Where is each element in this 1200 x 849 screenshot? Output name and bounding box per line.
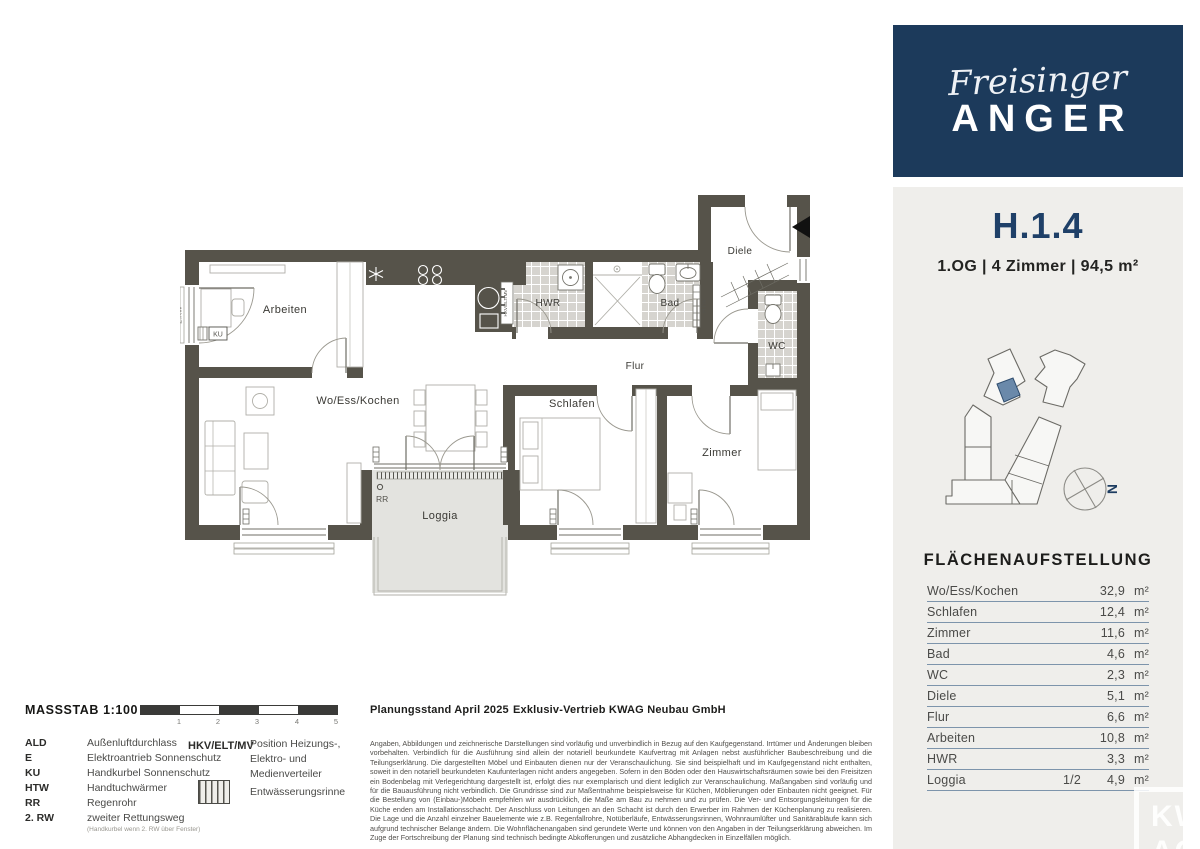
sales-contact: Exklusiv-Vertrieb KWAG Neubau GmbH: [513, 704, 726, 716]
area-value: 4,9: [1091, 773, 1125, 787]
label-ku: KU: [213, 332, 223, 339]
legend-abbr: KU: [25, 766, 87, 781]
watermark-top: KW: [1151, 800, 1200, 835]
washing-machine: [558, 265, 583, 290]
legend-text: Elektroantrieb Sonnenschutz: [87, 751, 221, 766]
drainage-channel: [377, 472, 503, 479]
brand-script-text: Freisinger: [948, 61, 1128, 101]
area-factor: 1/2: [1053, 773, 1081, 787]
area-row: Flur6,6m²: [927, 707, 1149, 728]
area-table-title: FLÄCHENAUFSTELLUNG: [893, 551, 1183, 570]
legend-abbr: ALD: [25, 736, 87, 751]
scale-tick: 3: [255, 717, 259, 726]
area-label: Loggia: [927, 773, 1053, 787]
area-value: 6,6: [1091, 710, 1125, 724]
area-label: Arbeiten: [927, 731, 1053, 745]
legend-item: EElektroantrieb Sonnenschutz: [25, 751, 221, 766]
label-arbeiten: Arbeiten: [263, 304, 307, 316]
legend-abbr: 2. RW: [25, 811, 87, 826]
site-plan: N: [935, 337, 1155, 547]
area-unit: m²: [1125, 689, 1149, 703]
area-unit: m²: [1125, 584, 1149, 598]
area-row: Diele5,1m²: [927, 686, 1149, 707]
drainage-channel-icon: [198, 780, 230, 804]
loggia-floor: [372, 470, 508, 595]
area-unit: m²: [1125, 731, 1149, 745]
scale-tick: 2: [216, 717, 220, 726]
label-zimmer: Zimmer: [702, 447, 742, 459]
north-label: N: [1104, 484, 1120, 494]
scale-tick: 4: [295, 717, 299, 726]
unit-id: H.1.4: [893, 205, 1183, 247]
legend-text: Handkurbel Sonnenschutz: [87, 766, 210, 781]
label-hwr: HWR: [535, 298, 560, 309]
scale-label: MASSSTAB 1:100: [25, 703, 138, 717]
legend-abbr: HTW: [25, 781, 87, 796]
brand-name-text: ANGER: [951, 100, 1133, 138]
legend-item: HTWHandtuchwärmer: [25, 781, 221, 796]
area-value: 10,8: [1091, 731, 1125, 745]
building-b: [1035, 350, 1085, 407]
area-label: HWR: [927, 752, 1053, 766]
area-unit: m²: [1125, 710, 1149, 724]
area-value: 5,1: [1091, 689, 1125, 703]
legend-text: zweiter Rettungsweg: [87, 811, 184, 826]
legend-text: Außenluftdurchlass: [87, 736, 177, 751]
legend-item: RRRegenrohr: [25, 796, 221, 811]
compass-icon: N: [1064, 468, 1120, 510]
label-rr: RR: [376, 494, 388, 504]
legal-disclaimer: Angaben, Abbildungen und zeichnerische D…: [370, 739, 872, 842]
label-schlafen: Schlafen: [549, 398, 595, 410]
area-unit: m²: [1125, 605, 1149, 619]
label-bad: Bad: [661, 298, 680, 309]
scale-tick: 1: [177, 717, 181, 726]
area-row: WC2,3m²: [927, 665, 1149, 686]
legend-note: (Handkurbel wenn 2. RW über Fenster): [87, 826, 200, 834]
area-value: 4,6: [1091, 647, 1125, 661]
area-value: 11,6: [1091, 626, 1125, 640]
legend-note-row: (Handkurbel wenn 2. RW über Fenster): [25, 826, 221, 834]
area-label: Flur: [927, 710, 1053, 724]
floorplan-sheet: Arbeiten Wo/Ess/Kochen Schlafen Zimmer F…: [0, 0, 1200, 849]
area-value: 32,9: [1091, 584, 1125, 598]
label-wohnen: Wo/Ess/Kochen: [316, 395, 399, 407]
label-loggia: Loggia: [422, 510, 458, 522]
legend-text: Handtuchwärmer: [87, 781, 167, 796]
area-value: 3,3: [1091, 752, 1125, 766]
area-row: Wo/Ess/Kochen32,9m²: [927, 581, 1149, 602]
floor-plan-drawing: Arbeiten Wo/Ess/Kochen Schlafen Zimmer F…: [180, 185, 830, 605]
scale-bar: [140, 705, 338, 715]
area-label: Wo/Ess/Kochen: [927, 584, 1053, 598]
planning-status: Planungsstand April 2025: [370, 704, 509, 716]
building-c-tower: [965, 405, 991, 485]
watermark-bottom: AG: [1151, 835, 1200, 849]
area-unit: m²: [1125, 773, 1149, 787]
legend-item: KUHandkurbel Sonnenschutz: [25, 766, 221, 781]
scale-tick: 5: [334, 717, 338, 726]
label-hkv: HKV/ELT/MV: [503, 289, 508, 317]
area-unit: m²: [1125, 626, 1149, 640]
hkv-legend-abbr: HKV/ELT/MV: [188, 740, 254, 752]
drainage-channel-label: Entwässerungsrinne: [250, 786, 345, 798]
area-unit: m²: [1125, 668, 1149, 682]
label-diele: Diele: [728, 246, 753, 257]
legend-abbr: RR: [25, 796, 87, 811]
area-row: Loggia1/24,9m²: [927, 770, 1149, 791]
area-row: Zimmer11,6m²: [927, 623, 1149, 644]
label-wc: WC: [768, 341, 785, 352]
area-row: Bad4,6m²: [927, 644, 1149, 665]
label-rw2: 2.RW: [180, 306, 184, 324]
legend-abbr: E: [25, 751, 87, 766]
kwag-watermark: KW AG: [1134, 787, 1200, 849]
dining-set: [414, 385, 487, 451]
shower: [593, 262, 642, 327]
area-label: Diele: [927, 689, 1053, 703]
area-row: Schlafen12,4m²: [927, 602, 1149, 623]
unit-info: 1.OG | 4 Zimmer | 94,5 m²: [893, 258, 1183, 276]
label-htw: HTW: [702, 299, 708, 313]
area-label: Schlafen: [927, 605, 1053, 619]
label-flur: Flur: [626, 361, 645, 372]
area-label: WC: [927, 668, 1053, 682]
area-label: Bad: [927, 647, 1053, 661]
area-label: Zimmer: [927, 626, 1053, 640]
legend-item: 2. RWzweiter Rettungsweg: [25, 811, 221, 826]
brand-header: Freisinger ANGER: [893, 25, 1183, 177]
hkv-legend-text: Position Heizungs-, Elektro- und Medienv…: [250, 737, 350, 782]
area-row: HWR3,3m²: [927, 749, 1149, 770]
area-row: Arbeiten10,8m²: [927, 728, 1149, 749]
area-value: 12,4: [1091, 605, 1125, 619]
area-value: 2,3: [1091, 668, 1125, 682]
area-table: Wo/Ess/Kochen32,9m² Schlafen12,4m² Zimme…: [927, 581, 1149, 791]
area-unit: m²: [1125, 647, 1149, 661]
area-unit: m²: [1125, 752, 1149, 766]
legend-text: Regenrohr: [87, 796, 137, 811]
